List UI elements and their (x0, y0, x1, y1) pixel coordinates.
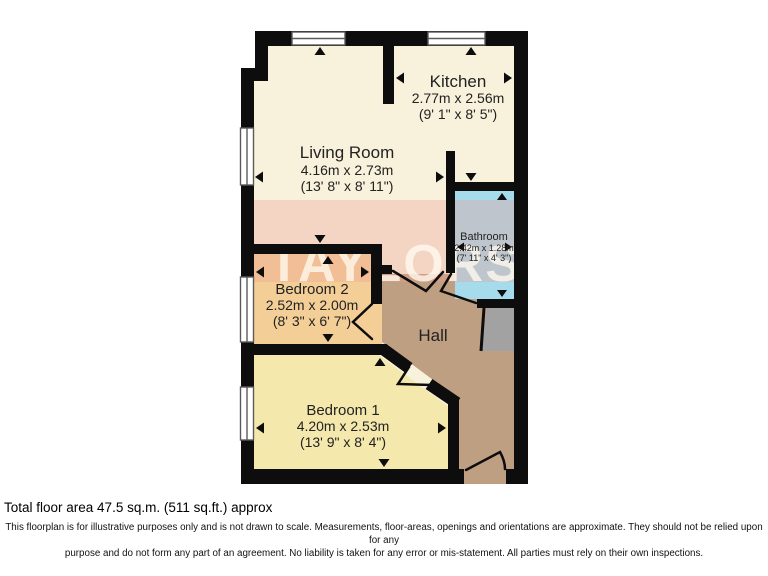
bedroom1-label: Bedroom 1 (306, 402, 379, 419)
wall-bedroom1-right (448, 398, 459, 469)
bathroom-label: Bathroom (460, 231, 508, 243)
bedroom2-imperial: (8' 3" x 6' 7") (273, 313, 351, 329)
wall-bedroom2-top (254, 244, 382, 254)
window-icon (241, 277, 254, 342)
living-room-imperial: (13' 8" x 8' 11") (301, 178, 394, 194)
kitchen-label: Kitchen (430, 72, 487, 91)
wall-kitchen-divider (383, 46, 394, 104)
window-icon (292, 32, 345, 45)
bedroom2-label: Bedroom 2 (275, 281, 348, 298)
floorplan-page: TAYLORS (0, 0, 768, 576)
wall-bedroom2-bottom (241, 344, 387, 355)
disclaimer-line-2: purpose and do not form any part of an a… (0, 547, 768, 560)
window-icon (241, 128, 254, 185)
window-icon (241, 387, 254, 440)
floorplan-canvas: TAYLORS (0, 0, 768, 496)
wall-living-bathroom (446, 151, 455, 273)
entrance-opening (464, 469, 506, 484)
wall-right (514, 31, 528, 484)
bedroom1-imperial: (13' 9" x 8' 4") (300, 434, 386, 450)
bathroom-imperial: (7' 11" x 4' 3") (457, 253, 512, 263)
total-floor-area: Total floor area 47.5 sq.m. (511 sq.ft.)… (4, 500, 272, 515)
bedroom2-metric: 2.52m x 2.00m (266, 297, 359, 313)
kitchen-imperial: (9' 1" x 8' 5") (419, 106, 497, 122)
disclaimer: This floorplan is for illustrative purpo… (0, 521, 768, 560)
wall-living-stub (371, 265, 392, 274)
wall-bathroom-top (455, 182, 514, 191)
wall-bathroom-bottom (477, 299, 514, 308)
disclaimer-line-1: This floorplan is for illustrative purpo… (0, 521, 768, 547)
hall-label: Hall (418, 326, 447, 345)
kitchen-metric: 2.77m x 2.56m (412, 90, 505, 106)
living-room-label: Living Room (300, 143, 395, 162)
bedroom1-metric: 4.20m x 2.53m (297, 418, 390, 434)
bathroom-metric: 2.42m x 1.28m (454, 243, 514, 253)
living-room-metric: 4.16m x 2.73m (301, 162, 394, 178)
window-icon (428, 32, 485, 45)
